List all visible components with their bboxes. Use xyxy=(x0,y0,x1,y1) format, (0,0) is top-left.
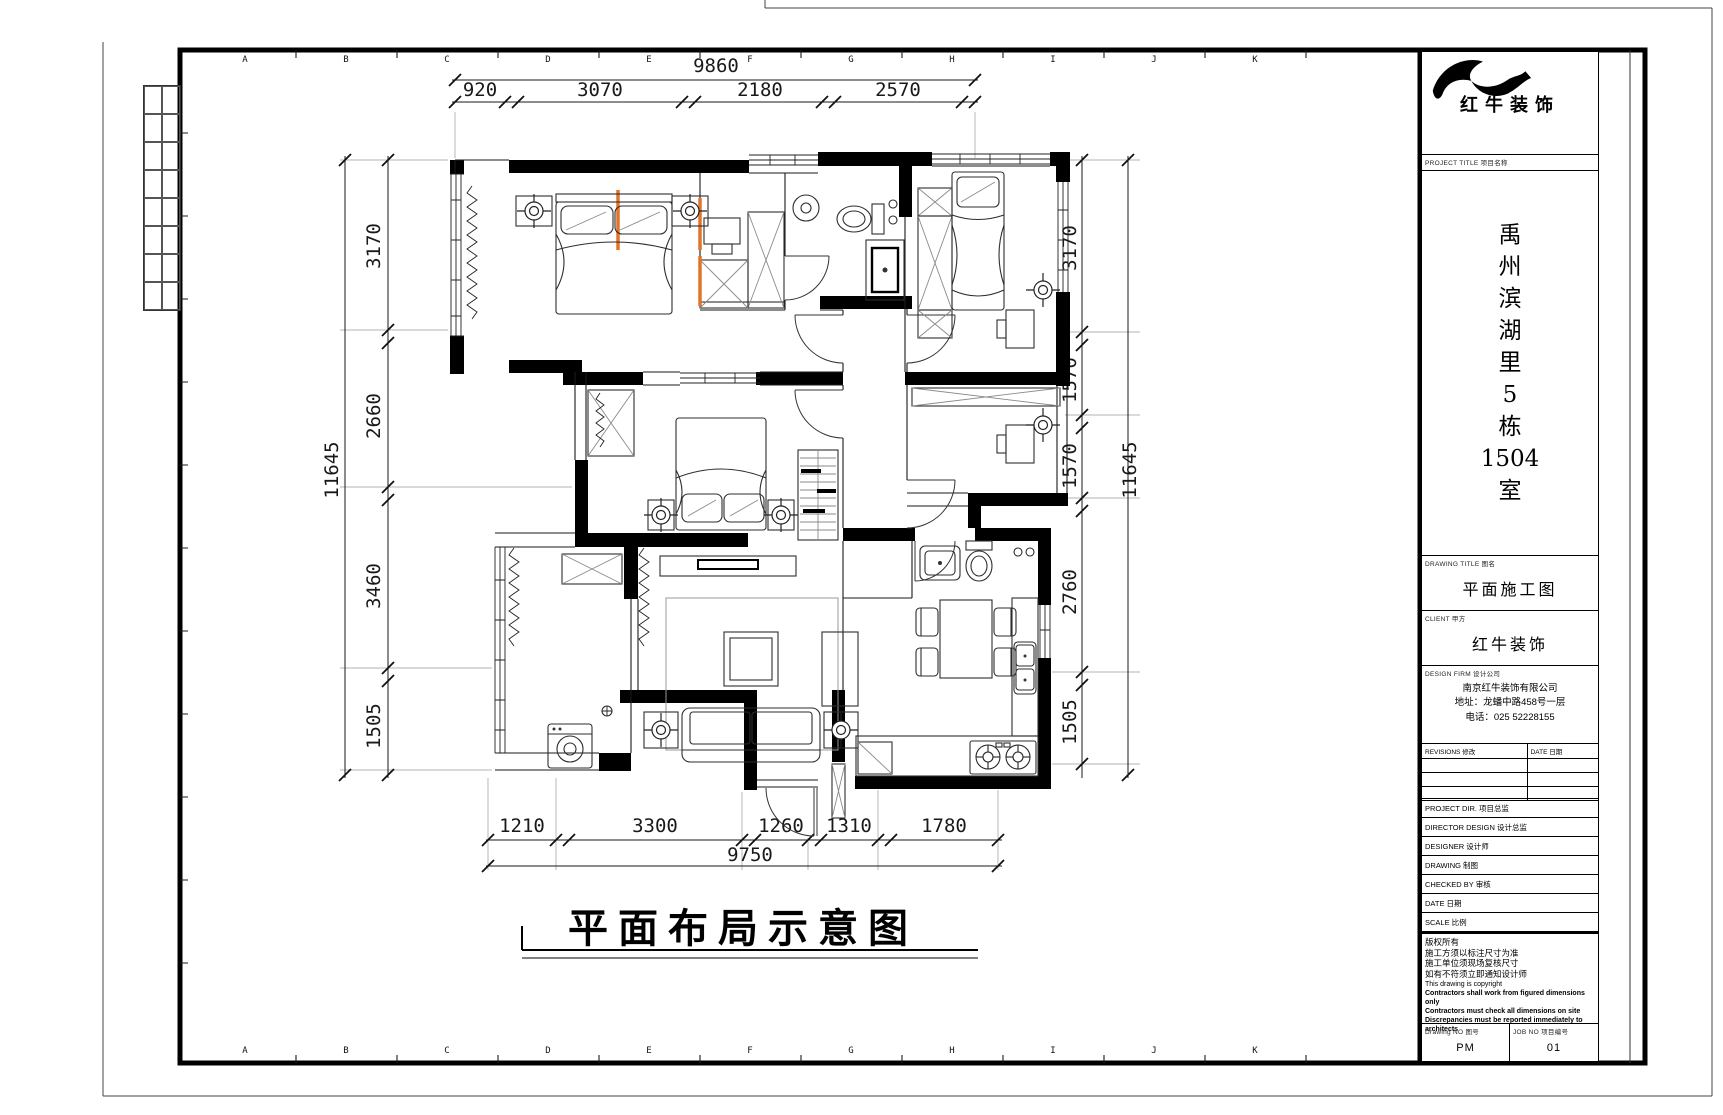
dim-label: 11645 xyxy=(321,441,343,498)
wardrobe-x xyxy=(918,188,952,216)
dim-label: 9750 xyxy=(727,844,773,866)
svg-text:H: H xyxy=(949,1046,954,1056)
dim-label: 3170 xyxy=(363,223,385,269)
field-drawing: DRAWING 制图 xyxy=(1422,856,1598,875)
dim-label: 2760 xyxy=(1059,569,1081,615)
dim-label: 3460 xyxy=(363,563,385,609)
dim-label: 2660 xyxy=(363,393,385,439)
dim-label: 3300 xyxy=(632,815,678,837)
dim-label: 1505 xyxy=(363,703,385,749)
svg-text:H: H xyxy=(949,55,954,65)
dim-label: 1260 xyxy=(758,815,804,837)
dim-label: 3170 xyxy=(1059,225,1081,271)
project-name-char: 栋 xyxy=(1499,416,1522,439)
furniture-master-bedroom xyxy=(516,194,740,314)
dim-label: 1780 xyxy=(921,815,967,837)
svg-text:J: J xyxy=(1151,1046,1156,1056)
svg-text:J: J xyxy=(1151,55,1156,65)
drawing-no-value: PM xyxy=(1422,1042,1509,1054)
field-project-director: PROJECT DIR. 项目总监 xyxy=(1422,799,1598,818)
design-firm-label: DESIGN FIRM 设计公司 xyxy=(1422,666,1598,678)
svg-text:B: B xyxy=(343,55,348,65)
revisions-date-label: DATE 日期 xyxy=(1528,744,1566,758)
project-name-char: 州 xyxy=(1499,256,1522,279)
bookshelf xyxy=(798,450,838,540)
note-line: 施工单位须现场复核尺寸 xyxy=(1425,958,1595,969)
svg-text:G: G xyxy=(848,1046,853,1056)
furniture-study xyxy=(997,408,1060,463)
cabinet-x xyxy=(832,764,845,818)
drawing-sheet: { "sheet": { "grid_letters": ["A","B","C… xyxy=(0,0,1723,1115)
project-name-char: 滨 xyxy=(1499,288,1522,311)
dim-label: 1570 xyxy=(1059,443,1081,489)
job-no-value: 01 xyxy=(1510,1042,1598,1054)
svg-text:K: K xyxy=(1252,1046,1258,1056)
project-name-char: 禹 xyxy=(1499,224,1522,247)
dim-chain-bottom: 1210 3300 1260 1310 1780 9750 xyxy=(482,815,1004,872)
field-checked-by: CHECKED BY 审核 xyxy=(1422,875,1598,894)
svg-text:A: A xyxy=(242,55,248,65)
drawing-no-label: Drawing NO 图号 xyxy=(1422,1024,1509,1036)
grid-letters-bottom: AB CD EF GH IJ K xyxy=(242,1046,1258,1056)
field-design-director: DIRECTOR DESIGN 设计总监 xyxy=(1422,818,1598,837)
svg-text:B: B xyxy=(343,1046,348,1056)
drawing-title: 平面施工图 xyxy=(1422,576,1598,600)
partition-lines xyxy=(450,160,1067,787)
revision-strip xyxy=(143,85,181,311)
svg-text:E: E xyxy=(646,1046,651,1056)
dim-chain-left: 11645 3170 2660 3460 1505 xyxy=(321,154,394,781)
stove xyxy=(970,741,1036,774)
wardrobe-x xyxy=(700,260,748,308)
toilet xyxy=(966,541,992,581)
dim-label: 1210 xyxy=(499,815,545,837)
job-no-label: JOB NO 项目编号 xyxy=(1510,1024,1598,1036)
wardrobe-x xyxy=(918,216,952,310)
project-name-char: 1504 xyxy=(1481,448,1540,471)
svg-text:F: F xyxy=(747,55,752,65)
project-name: 禹 州 滨 湖 里 5 栋 1504 室 xyxy=(1422,171,1598,556)
svg-text:C: C xyxy=(444,1046,449,1056)
note-line: 版权所有 xyxy=(1425,937,1595,948)
project-name-char: 里 xyxy=(1499,352,1522,375)
svg-text:D: D xyxy=(545,55,550,65)
dim-label: 9860 xyxy=(693,55,739,77)
drawing-title-label: DRAWING TITLE 图名 xyxy=(1422,556,1598,568)
note-line: This drawing is copyright xyxy=(1425,980,1595,989)
cabinet-x xyxy=(562,554,622,584)
notes-block: 版权所有 施工方须以标注尺寸为准 施工单位须现场复核尺寸 如有不符须立即通知设计… xyxy=(1422,932,1598,1024)
project-title-label: PROJECT TITLE 项目名称 xyxy=(1422,155,1598,167)
furniture-bedroom-3 xyxy=(644,418,838,540)
signature-fields: PROJECT DIR. 项目总监 DIRECTOR DESIGN 设计总监 D… xyxy=(1422,799,1598,932)
note-line: 施工方须以标注尺寸为准 xyxy=(1425,948,1595,959)
dim-label: 1505 xyxy=(1059,699,1081,745)
project-name-char: 湖 xyxy=(1499,320,1522,343)
svg-text:K: K xyxy=(1252,55,1258,65)
svg-text:F: F xyxy=(747,1046,752,1056)
firm-phone: 电话：025 52228155 xyxy=(1422,711,1598,725)
svg-text:E: E xyxy=(646,55,651,65)
dim-label: 2570 xyxy=(875,79,921,101)
revisions-table: REVISIONS 修改 DATE 日期 xyxy=(1422,744,1598,799)
svg-text:C: C xyxy=(444,55,449,65)
client-label: CLIENT 甲方 xyxy=(1422,611,1598,623)
wardrobe-x xyxy=(918,310,952,338)
furniture-bathroom-1 xyxy=(793,195,904,300)
note-line: Contractors shall work from figured dime… xyxy=(1425,989,1595,1007)
title-block: 红牛装饰 PROJECT TITLE 项目名称 禹 州 滨 湖 里 5 栋 15… xyxy=(1422,52,1599,1061)
kitchen-counter-bottom xyxy=(856,736,1038,776)
field-scale: SCALE 比例 xyxy=(1422,913,1598,932)
dim-label: 2180 xyxy=(737,79,783,101)
note-line: 如有不符须立即通知设计师 xyxy=(1425,969,1595,980)
firm-name: 南京红牛装饰有限公司 xyxy=(1422,682,1598,696)
note-line: Contractors must check all dimensions on… xyxy=(1425,1007,1595,1016)
svg-text:I: I xyxy=(1050,55,1055,65)
drawing-number-block: Drawing NO 图号 PM JOB NO 项目编号 01 xyxy=(1422,1024,1598,1062)
field-date: DATE 日期 xyxy=(1422,894,1598,913)
svg-text:G: G xyxy=(848,55,853,65)
dining-set xyxy=(916,600,1016,678)
wardrobe-x xyxy=(912,388,1060,406)
dim-label: 3070 xyxy=(577,79,623,101)
svg-text:I: I xyxy=(1050,1046,1055,1056)
walls xyxy=(450,152,1070,790)
svg-text:A: A xyxy=(242,1046,248,1056)
revisions-label: REVISIONS 修改 xyxy=(1422,744,1528,758)
brand-logo-icon xyxy=(1422,52,1540,106)
furniture-bedroom-2 xyxy=(952,172,1060,348)
firm-address: 地址：龙蟠中路458号一层 xyxy=(1422,696,1598,710)
grid-letters-top: AB CD EF GH IJ K xyxy=(242,55,1258,65)
project-name-char: 室 xyxy=(1499,480,1522,503)
dim-chain-top: 9860 920 3070 2180 2570 xyxy=(449,55,981,108)
wardrobe-x xyxy=(748,212,784,308)
furniture-dining-kitchen xyxy=(856,541,1038,776)
field-designer: DESIGNER 设计师 xyxy=(1422,837,1598,856)
bay-window-seat xyxy=(588,390,634,456)
client-name: 红牛装饰 xyxy=(1422,631,1598,655)
page-title: 平面布局示意图 xyxy=(505,896,981,954)
brand-block: 红牛装饰 xyxy=(1422,52,1598,155)
svg-text:D: D xyxy=(545,1046,550,1056)
dim-chain-right: 11645 3170 1570 1570 2760 1505 xyxy=(1059,154,1141,781)
dim-label: 920 xyxy=(463,79,497,101)
project-name-char: 5 xyxy=(1503,384,1518,407)
dim-label: 11645 xyxy=(1119,441,1141,498)
